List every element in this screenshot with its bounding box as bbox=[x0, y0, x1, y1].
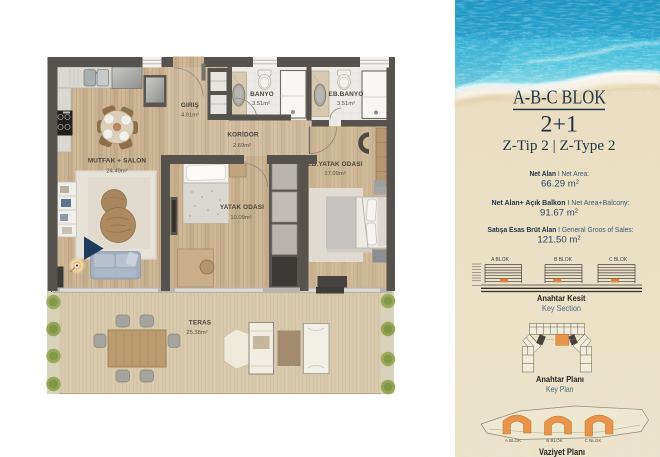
svg-text:BANYO: BANYO bbox=[250, 91, 274, 98]
svg-text:Net Alan+ Açık Balkon I Net: Net Alan+ Açık Balkon I Net Area+Balcony… bbox=[492, 198, 630, 207]
svg-text:2.69m²: 2.69m² bbox=[233, 143, 251, 149]
svg-text:Vaziyet Planı: Vaziyet Planı bbox=[539, 447, 585, 457]
svg-text:4.91m²: 4.91m² bbox=[181, 113, 199, 119]
svg-text:Anahtar Kesit: Anahtar Kesit bbox=[537, 293, 586, 303]
svg-text:Key Plan: Key Plan bbox=[546, 384, 574, 394]
svg-text:Z-Tip 2 | Z-Type 2: Z-Tip 2 | Z-Type 2 bbox=[503, 138, 616, 154]
svg-text:2+1: 2+1 bbox=[541, 112, 579, 137]
svg-text:C BLOK: C BLOK bbox=[609, 257, 628, 263]
svg-text:A BLOK: A BLOK bbox=[505, 438, 522, 443]
svg-text:Key Section: Key Section bbox=[542, 303, 581, 313]
svg-text:121.50 m2: 121.50 m2 bbox=[537, 235, 580, 246]
svg-text:24.49m²: 24.49m² bbox=[106, 169, 127, 175]
svg-text:B BLOK: B BLOK bbox=[554, 257, 573, 263]
svg-text:3.51m²: 3.51m² bbox=[252, 101, 270, 107]
svg-text:B BLOK: B BLOK bbox=[546, 438, 564, 443]
svg-text:10.09m²: 10.09m² bbox=[230, 215, 251, 221]
svg-text:66.29 m2: 66.29 m2 bbox=[541, 179, 579, 190]
svg-text:Anahtar Planı: Anahtar Planı bbox=[536, 374, 584, 384]
svg-text:A BLOK: A BLOK bbox=[491, 257, 509, 263]
svg-text:3.51m²: 3.51m² bbox=[337, 101, 355, 107]
svg-text:TERAS: TERAS bbox=[189, 320, 212, 327]
svg-text:91.67 m2: 91.67 m2 bbox=[540, 208, 578, 219]
svg-text:17.09m²: 17.09m² bbox=[324, 171, 345, 177]
svg-text:GIRIŞ: GIRIŞ bbox=[181, 102, 200, 109]
svg-text:KORİDOR: KORİDOR bbox=[227, 130, 258, 139]
svg-text:EB.BANYO: EB.BANYO bbox=[329, 91, 364, 98]
svg-text:Satışa Esas Brüt Alan I Gene: Satışa Esas Brüt Alan I General Groos of… bbox=[488, 225, 634, 234]
svg-text:A-B-C BLOK: A-B-C BLOK bbox=[513, 88, 606, 109]
svg-text:C BLOK: C BLOK bbox=[585, 438, 603, 443]
svg-text:Net Alan I Net Area:: Net Alan I Net Area: bbox=[530, 169, 590, 178]
svg-text:25.38m²: 25.38m² bbox=[186, 330, 207, 336]
svg-text:YATAK ODASI: YATAK ODASI bbox=[220, 204, 264, 211]
svg-text:MUTFAK + SALON: MUTFAK + SALON bbox=[88, 158, 147, 165]
